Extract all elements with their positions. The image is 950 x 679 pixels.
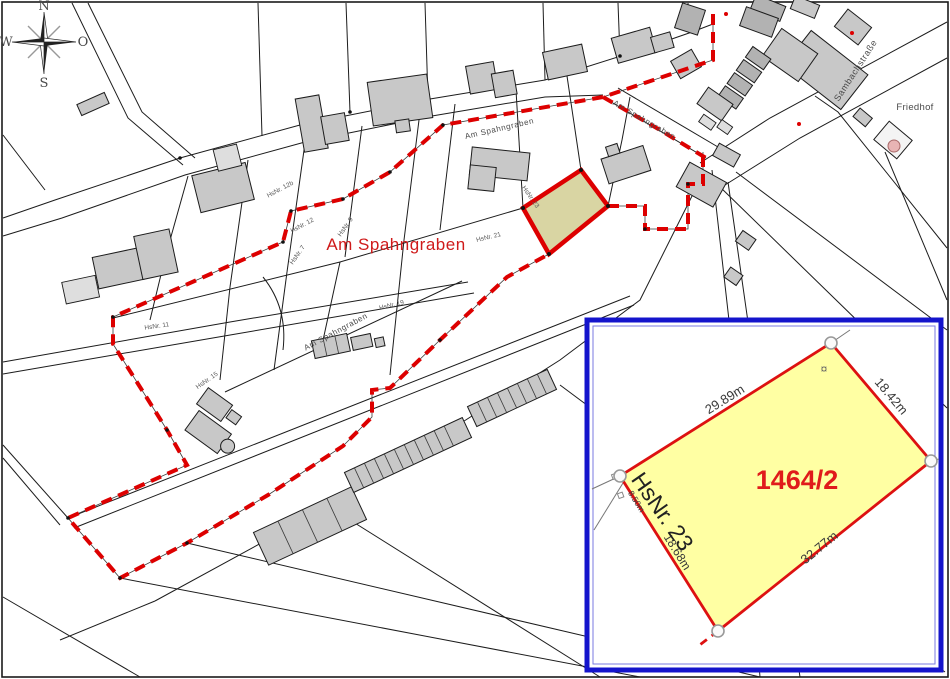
compass-west-label: W bbox=[0, 35, 13, 50]
inset-parcel-number: 1464/2 bbox=[756, 465, 839, 495]
compass-north-label: N bbox=[38, 0, 49, 14]
compass-east-label: O bbox=[78, 35, 89, 50]
compass-south-label: S bbox=[40, 76, 49, 91]
main-map-canvas[interactable]: HsNr. 23 Am Spahngraben Am Spahngraben A… bbox=[0, 0, 950, 679]
place-label-friedhof: Friedhof bbox=[896, 102, 933, 113]
lamp-icon: ¤ bbox=[821, 362, 828, 376]
chapel-dome bbox=[888, 140, 900, 152]
cadastral-plan-page: HsNr. 23 Am Spahngraben Am Spahngraben A… bbox=[0, 0, 950, 679]
inset-detail-panel: ¤ 29.89m 18.42m 32.77m 18.68m 8.50m HsNr… bbox=[587, 320, 941, 670]
survey-marker bbox=[617, 492, 623, 498]
area-label-am-spahngraben: Am Spahngraben bbox=[326, 235, 465, 254]
